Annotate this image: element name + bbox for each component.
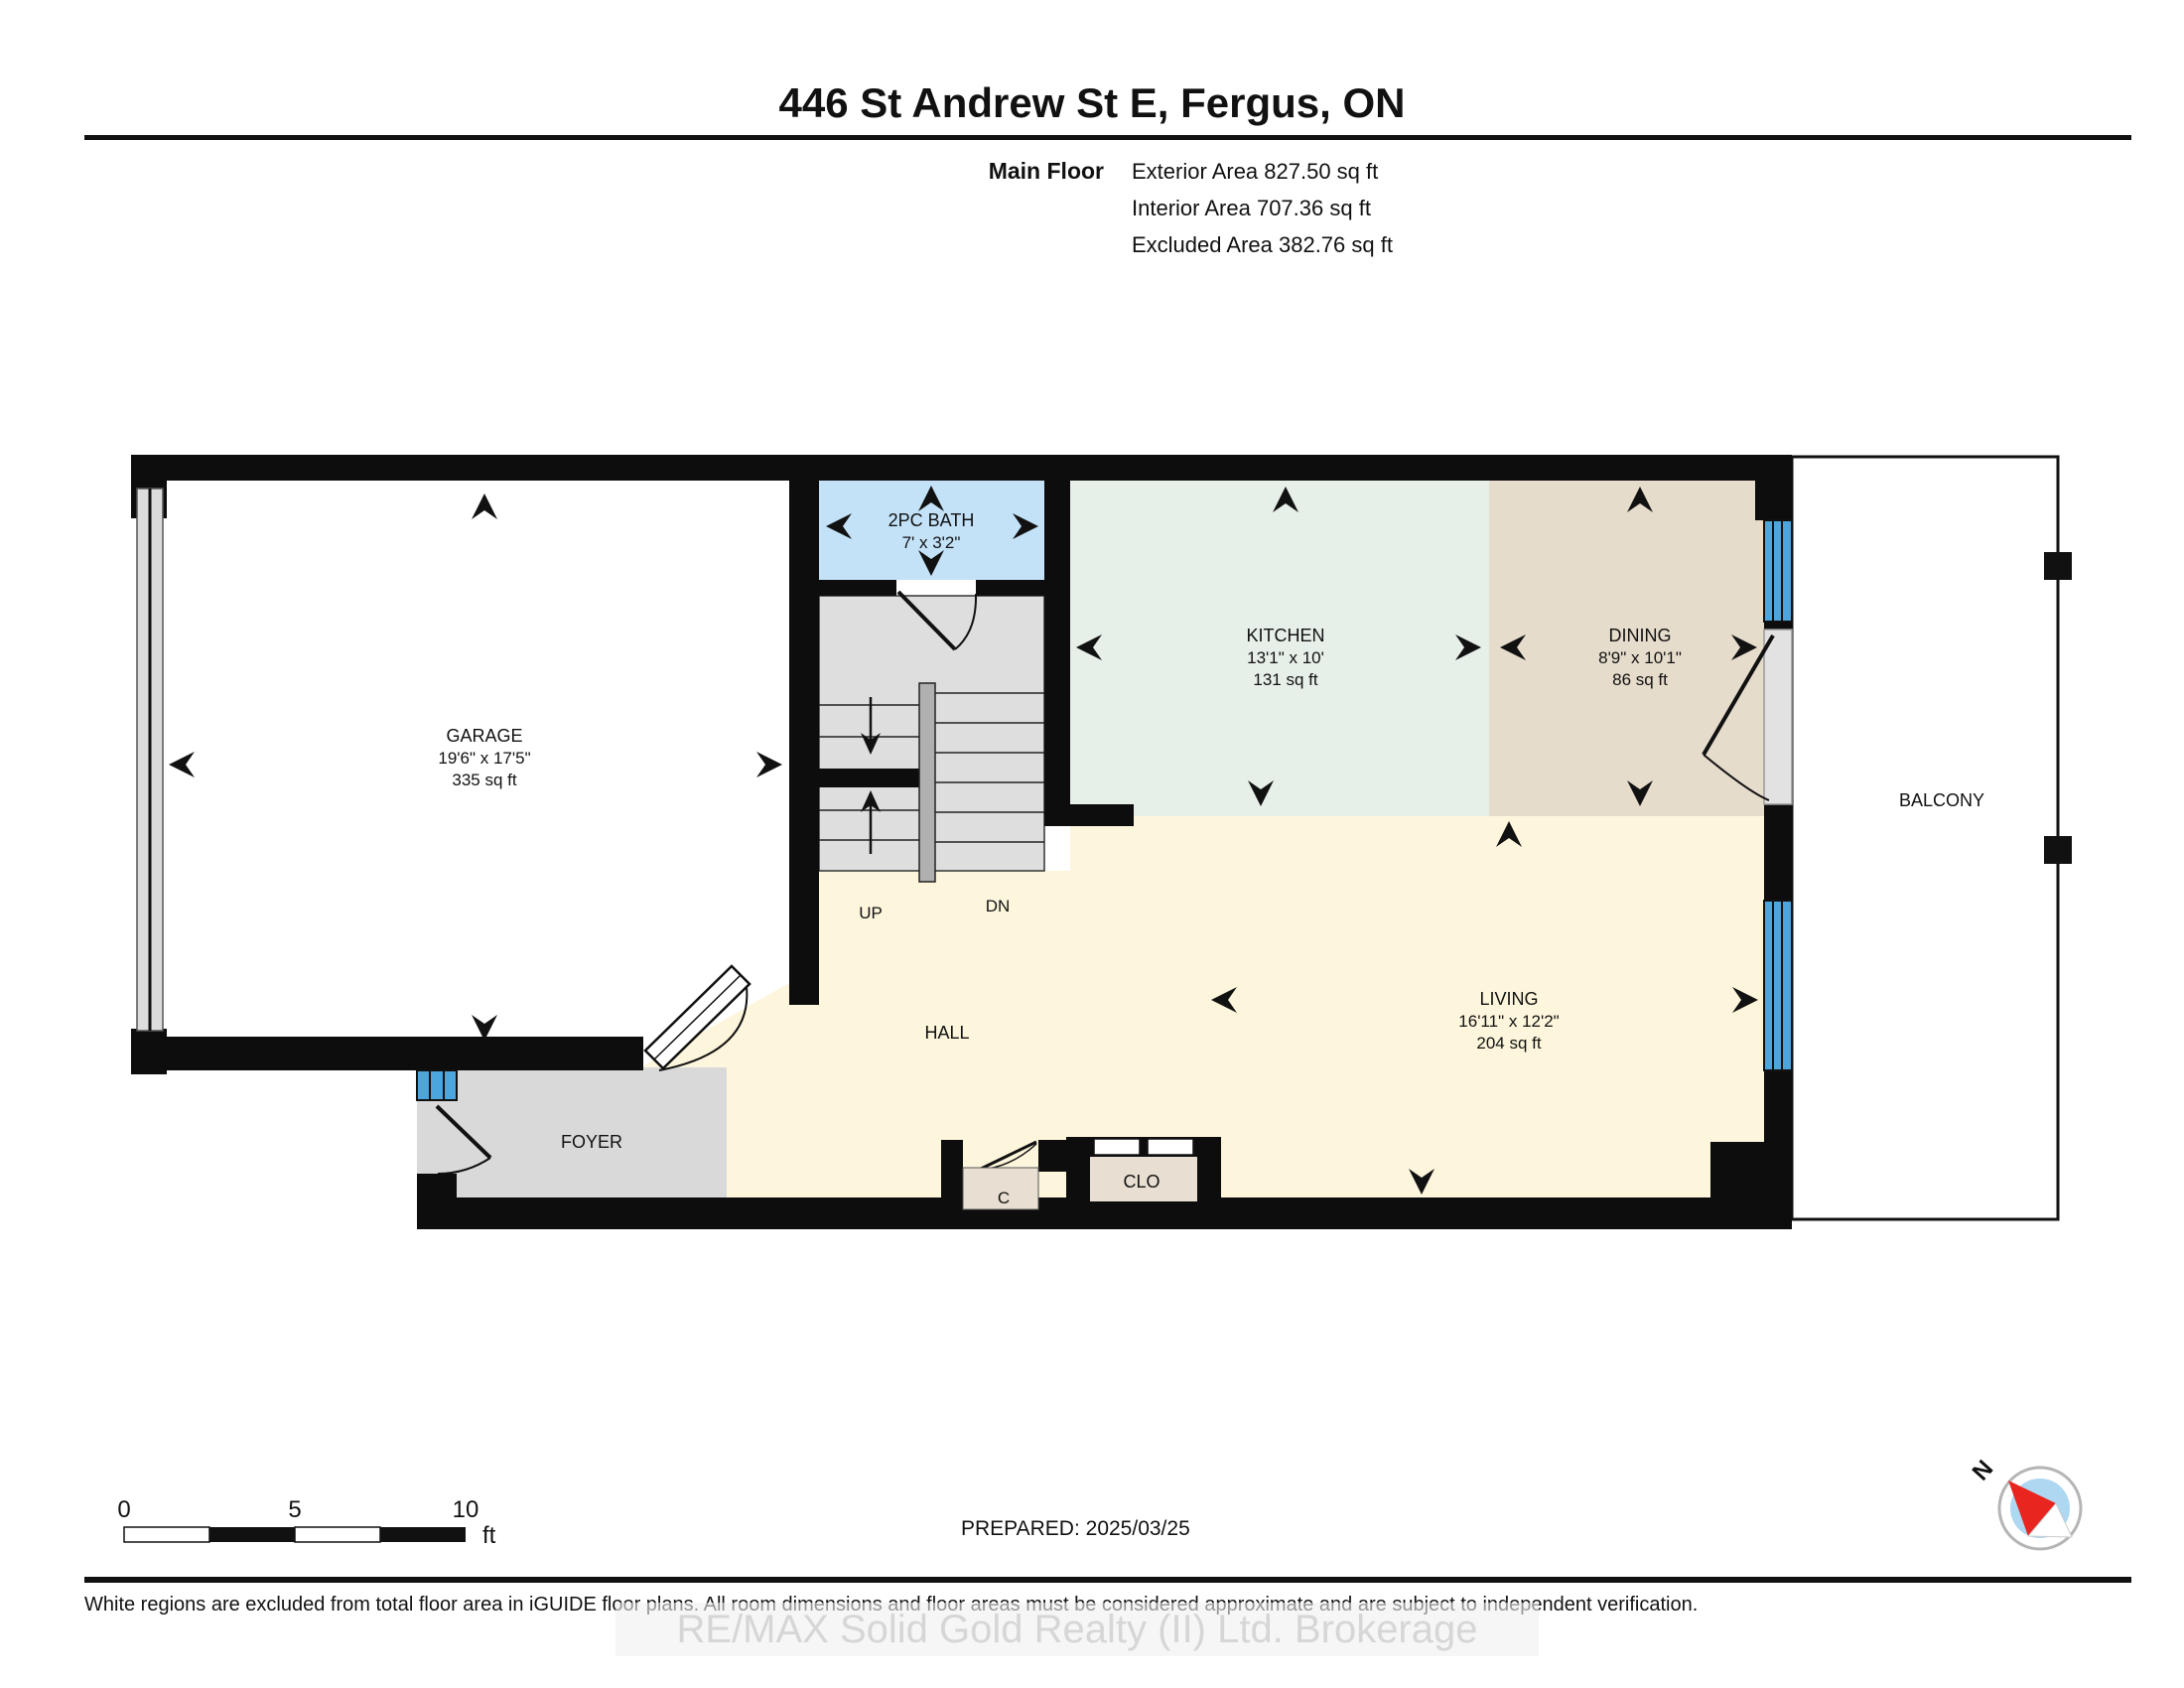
kitchen-label: KITCHEN xyxy=(1246,626,1324,645)
scale-tick-0: 0 xyxy=(117,1496,130,1523)
dining-area: 86 sq ft xyxy=(1612,670,1668,689)
hall-label: HALL xyxy=(924,1023,969,1043)
clo-label: CLO xyxy=(1123,1172,1160,1192)
stairs-up-label: UP xyxy=(859,904,883,922)
wall-clo-right xyxy=(1197,1137,1221,1201)
dining-dims: 8'9" x 10'1" xyxy=(1598,648,1682,667)
room-floors xyxy=(161,479,1764,1198)
bath-label: 2PC BATH xyxy=(888,510,975,530)
entry-window xyxy=(417,1070,457,1100)
kitchen-area: 131 sq ft xyxy=(1253,670,1317,689)
balcony-post-top xyxy=(2044,552,2072,580)
wall-stair-right xyxy=(1044,455,1070,826)
wall-garage-front xyxy=(131,1037,643,1070)
balcony-deck xyxy=(1792,457,2058,1219)
balcony-post-bottom xyxy=(2044,836,2072,864)
wall-clo-left xyxy=(1066,1137,1090,1201)
wall-kitchen-stub xyxy=(1048,804,1134,826)
compass-north-label: N xyxy=(1968,1456,1999,1486)
compass-icon: N xyxy=(1968,1456,2081,1549)
c-closet-label: C xyxy=(998,1189,1010,1207)
garage-label: GARAGE xyxy=(446,726,522,746)
wall-bottom-right-corner xyxy=(1710,1142,1764,1229)
wall-right-a xyxy=(1764,622,1792,630)
balcony-label: BALCONY xyxy=(1899,790,1984,810)
wall-bath-bottom-left xyxy=(819,580,896,596)
garage-dims: 19'6" x 17'5" xyxy=(438,749,530,768)
wall-right-c xyxy=(1764,1070,1792,1229)
scale-tick-5: 5 xyxy=(288,1496,301,1523)
wall-dining-corner xyxy=(1755,481,1792,520)
stairs-down-label: DN xyxy=(986,897,1011,915)
header-divider xyxy=(84,135,2131,140)
scale-tick-10: 10 xyxy=(453,1496,479,1523)
living-area: 204 sq ft xyxy=(1476,1034,1541,1053)
wall-c-closet-left xyxy=(941,1140,963,1209)
wall-entry-bottom xyxy=(417,1174,457,1199)
stair-rail xyxy=(919,683,935,882)
living-window xyxy=(1764,901,1792,1070)
living-dims: 16'11" x 12'2" xyxy=(1458,1012,1559,1031)
brokerage-watermark: RE/MAX Solid Gold Realty (II) Ltd. Broke… xyxy=(677,1608,1478,1651)
exterior-area-text: Exterior Area 827.50 sq ft xyxy=(1132,159,1378,184)
garage-area: 335 sq ft xyxy=(452,771,516,789)
footer-divider xyxy=(84,1577,2131,1583)
living-label: LIVING xyxy=(1479,989,1538,1009)
page-title: 446 St Andrew St E, Fergus, ON xyxy=(779,79,1406,126)
floor-plan-page: 446 St Andrew St E, Fergus, ON Main Floo… xyxy=(0,0,2184,1688)
scale-unit: ft xyxy=(482,1522,496,1549)
floor-label: Main Floor xyxy=(989,158,1104,184)
kitchen-dims: 13'1" x 10' xyxy=(1247,648,1324,667)
balcony-outline xyxy=(1792,457,2072,1219)
interior-area-text: Interior Area 707.36 sq ft xyxy=(1132,196,1371,220)
clo-door-left xyxy=(1094,1139,1140,1155)
wall-bottom xyxy=(417,1197,1710,1229)
wall-top xyxy=(131,455,1792,481)
foyer-label: FOYER xyxy=(561,1132,622,1152)
wall-stair-stub xyxy=(789,769,934,787)
clo-door-right xyxy=(1148,1139,1193,1155)
dining-label: DINING xyxy=(1609,626,1672,645)
wall-bath-bottom-right xyxy=(976,580,1044,596)
wall-right-b xyxy=(1764,804,1792,901)
wall-c-closet-right xyxy=(1038,1140,1066,1172)
prepared-date: PREPARED: 2025/03/25 xyxy=(961,1517,1190,1540)
floor-plan-canvas: 446 St Andrew St E, Fergus, ON Main Floo… xyxy=(0,0,2184,1688)
bath-dims: 7' x 3'2" xyxy=(902,533,961,552)
scale-bar: 0 5 10 ft xyxy=(117,1496,495,1549)
excluded-area-text: Excluded Area 382.76 sq ft xyxy=(1132,232,1393,257)
wall-garage-right xyxy=(789,455,819,1005)
dining-window xyxy=(1764,520,1792,622)
garage-door xyxy=(137,489,163,1031)
